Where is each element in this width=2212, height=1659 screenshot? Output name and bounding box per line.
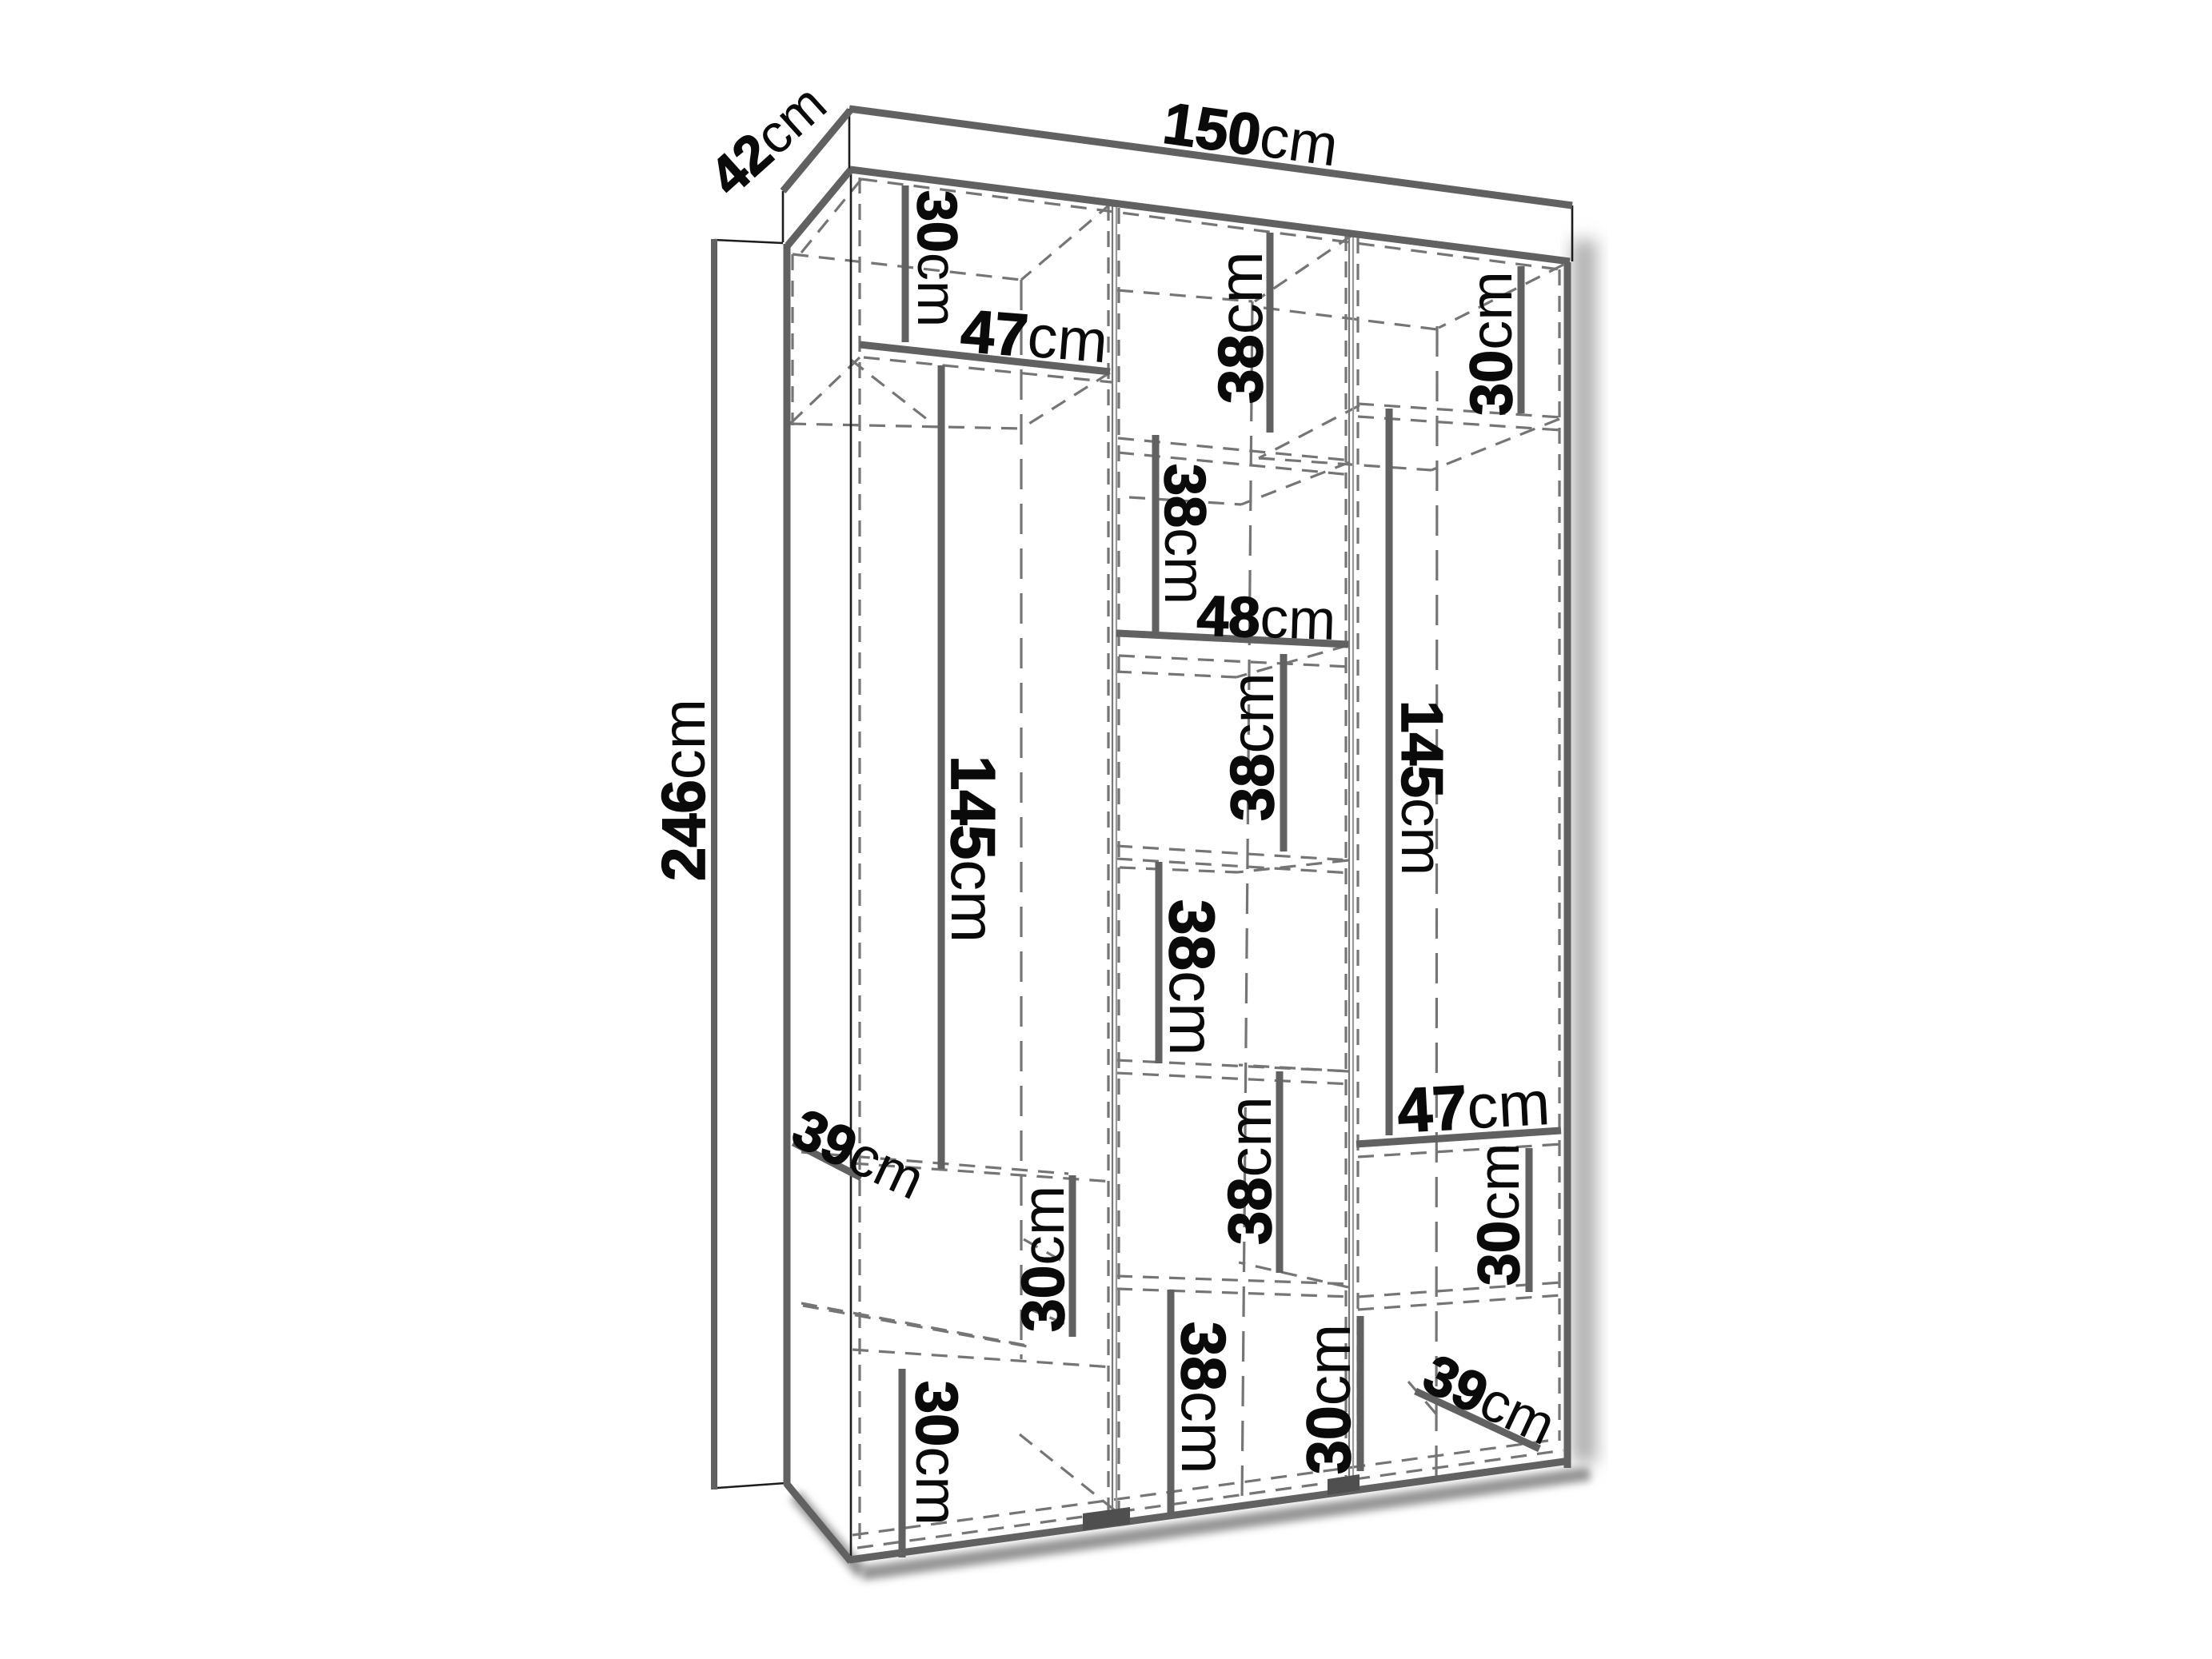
svg-text:38cm: 38cm <box>1152 464 1216 604</box>
svg-text:30cm: 30cm <box>1295 1324 1364 1474</box>
svg-text:47cm: 47cm <box>1395 1067 1551 1146</box>
svg-text:38cm: 38cm <box>1219 672 1287 821</box>
svg-text:145cm: 145cm <box>1389 700 1454 875</box>
svg-text:30cm: 30cm <box>904 1381 970 1525</box>
svg-text:30cm: 30cm <box>1009 1186 1076 1332</box>
svg-text:47cm: 47cm <box>959 297 1110 375</box>
svg-text:38cm: 38cm <box>1216 1096 1284 1245</box>
svg-text:145cm: 145cm <box>938 756 1008 943</box>
svg-text:38cm: 38cm <box>1168 1322 1239 1474</box>
svg-text:38cm: 38cm <box>1156 899 1228 1056</box>
svg-text:38cm: 38cm <box>1205 251 1276 404</box>
svg-text:30cm: 30cm <box>906 190 968 327</box>
svg-text:48cm: 48cm <box>1196 584 1336 652</box>
svg-text:246cm: 246cm <box>650 699 718 881</box>
svg-text:30cm: 30cm <box>1467 1143 1531 1286</box>
svg-text:30cm: 30cm <box>1458 271 1524 416</box>
